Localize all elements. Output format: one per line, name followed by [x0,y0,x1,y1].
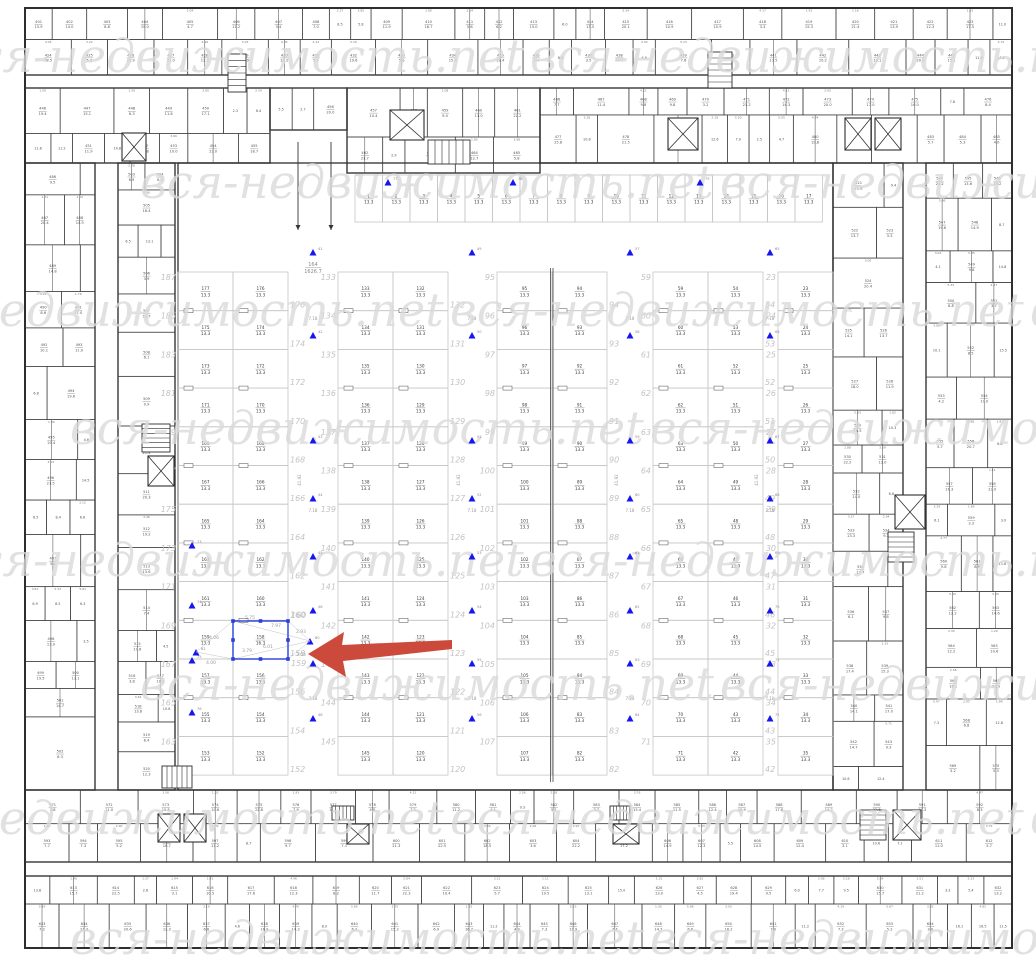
stall-area: 13.3 [256,525,266,530]
room-number: 415 [622,20,629,24]
stall-index-label: 32 [766,621,776,630]
dimension-tick: 5.18 [843,876,850,880]
door-tick [558,618,567,622]
dimension-label: 2.93 [296,629,306,635]
aisle-length-label: 41.92 [614,474,619,486]
stall-number: 123 [417,634,425,639]
stall-area: 13.3 [676,718,686,723]
room-number: 633 [39,922,46,926]
stall-index-label: 83 [609,726,619,735]
parking-stall[interactable] [178,466,233,505]
stall-index-label: 100 [480,467,495,476]
selection-handle[interactable] [231,619,235,623]
floor-plan-page: 40115.940214.04036.840419.04054.72.04406… [0,0,1036,960]
watermark-text: вся-недвижимость.net [450,283,1024,337]
stall-area: 13.3 [676,486,686,491]
dimension-tick: 2.33 [968,876,975,880]
stall-index-label: 160 [291,611,306,620]
room-area: 8.2 [333,891,339,895]
door-tick [784,386,793,390]
parking-stall[interactable] [497,582,552,621]
room-number: 542 [850,740,857,744]
room-number: 562 [949,606,956,610]
stall-area: 13.3 [520,486,530,491]
dimension-tick: 3.05 [725,904,732,908]
room-number: 402 [66,20,73,24]
stall-area: 13.3 [416,525,426,530]
room-number: 520 [143,767,151,771]
parking-stall[interactable] [497,736,552,775]
room-number: 553 [938,394,945,398]
room-area: 3.2 [703,103,709,107]
room-area: 19.4 [39,112,48,116]
room-number: 417 [714,20,721,24]
room-area: 14.8 [49,270,58,274]
room [948,504,995,536]
aisle-width-label: 7.18 [468,508,477,513]
parking-stall[interactable] [778,620,833,659]
room-area: 13.8 [34,889,42,893]
room-number: 619 [333,886,341,890]
room-area: 13.1 [584,891,592,895]
room-number: 499 [37,671,45,675]
room-number: 523 [886,229,893,233]
dimension-tick: 4.70 [292,904,299,908]
room-area: 5.7 [494,891,500,895]
room-area: 15.0 [618,889,626,893]
parking-stall[interactable] [708,736,763,775]
parking-stall[interactable] [653,582,708,621]
room-area: 14.3 [782,103,790,107]
parking-stall[interactable] [338,349,393,388]
selection-handle[interactable] [259,657,263,661]
room-area: 5.3 [993,769,999,773]
stall-number: 70 [678,712,684,717]
room [574,88,629,115]
room [926,746,980,790]
room-area: 9.8 [883,615,889,619]
selection-handle[interactable] [286,638,290,642]
room-number: 568 [963,718,971,722]
parking-stall[interactable] [338,736,393,775]
room-area: 3.3 [968,521,974,525]
room-area: 5.5 [887,234,893,238]
room-area: 19.6 [938,226,947,230]
room-area: 5.4 [968,889,973,893]
room-number: 502 [57,749,64,753]
stall-index-label: 159 [291,659,306,668]
room-area: 16.4 [142,209,151,213]
parking-stall[interactable] [233,349,288,388]
room [161,225,175,257]
stall-number: 32 [803,634,809,639]
room-area: 11.9 [84,150,93,154]
dimension-tick: 3.12 [79,500,86,504]
parking-stall[interactable] [338,582,393,621]
stall-number: 124 [417,596,425,601]
room-area: 10.8 [583,137,591,141]
unit-marker-icon: 46 [310,605,324,614]
watermark-layer: вся-недвижимость.netвся-недвижимость.net… [0,29,1036,960]
aisle-width-label: 7.18 [766,508,775,513]
stall-number: 49 [733,480,739,485]
dimension-tick: 4.19 [837,904,844,908]
stall-number: 92 [577,364,583,369]
room-number: 500 [72,671,80,675]
watermark-text: вся-недвижимость.net [650,401,1036,455]
dimension-tick: 2.94 [883,515,890,519]
marker-number: 73 [197,540,202,544]
room-area: 15.7 [70,891,78,895]
selection-handle[interactable] [231,657,235,661]
room-number: 614 [112,886,120,890]
dimension-tick: 3.00 [865,258,872,262]
hall-area: 1626.7 [304,269,322,275]
stall-index-label: 166 [290,494,305,503]
stall-number: 139 [362,518,370,523]
stall-area: 13.3 [801,718,811,723]
stall-index-label: 65 [641,505,651,514]
dimension-tick: 2.34 [255,88,262,92]
dimension-tick: 3.49 [39,904,46,908]
room-area: 7.3 [934,721,939,725]
room [964,88,1012,115]
stall-area: 13.3 [520,718,530,723]
parking-stall[interactable] [708,620,763,659]
room-number: 471 [743,97,750,101]
unit-marker-icon: 54 [469,605,483,614]
dimension-tick: 1.08 [442,88,449,92]
parking-stall[interactable] [393,582,448,621]
stall-index-label: 43 [765,726,775,735]
marker-number: 63 [635,658,640,662]
marker-number: 53 [477,551,482,555]
parking-stall[interactable] [552,466,607,505]
marker-number: 66 [775,330,780,334]
room-area: 13.1 [146,240,154,244]
stall-area: 13.3 [361,757,371,762]
dimension-tick: 2.65 [824,88,831,92]
room-number: 494 [68,389,76,393]
stall-number: 46 [733,596,739,601]
room-area: 13.7 [851,234,859,238]
parking-stall[interactable] [552,736,607,775]
marker-number: 68 [775,493,780,497]
stall-area: 13.3 [520,602,530,607]
room-number: 563 [992,606,999,610]
stall-number: 100 [521,480,529,485]
room-area: 20.0 [824,103,833,107]
stall-number: 64 [678,480,684,485]
parking-stall[interactable] [778,466,833,505]
room-area: 21.5 [622,140,630,144]
room-area: 6.0 [794,889,799,893]
room-area: 7.9 [736,137,741,141]
room-area: 3.2 [950,769,956,773]
door-tick [239,386,248,390]
parking-stall[interactable] [653,736,708,775]
room-number: 624 [542,886,550,890]
room-number: 615 [171,886,178,890]
parking-stall[interactable] [233,736,288,775]
elevator-shaft-icon [845,118,871,150]
parking-stall[interactable] [497,349,552,388]
room-number: 530 [844,455,852,459]
door-tick [399,618,408,622]
stall-number: 160 [257,596,265,601]
stall-index-label: 90 [609,456,619,465]
stall-number: 145 [362,751,370,756]
room-area: 6.3 [57,755,63,759]
dimension-tick: 4.11 [783,88,790,92]
selection-handle[interactable] [231,638,235,642]
room [80,163,95,195]
room-number: 531 [879,455,886,459]
door-tick [558,464,567,468]
stall-area: 13.3 [575,641,585,646]
stall-index-label: 95 [485,273,495,282]
dimension-label: 5.75 [245,615,255,621]
parking-stall[interactable] [393,349,448,388]
stall-number: 89 [577,480,583,485]
stall-number: 83 [577,712,583,717]
room-number: 498 [48,637,56,641]
room-area: 14.6 [992,611,1001,615]
marker-number: 76 [197,707,202,711]
room-number: 419 [806,20,814,24]
parking-stall[interactable] [653,620,708,659]
room-number: 461 [514,109,521,113]
room-area: 6.8 [33,391,38,395]
dimension-tick: 2.82 [697,876,704,880]
room-area: 3.0 [1001,518,1006,522]
hall-number: 164 [308,262,318,268]
room-number: 570 [992,764,1000,768]
stall-number: 35 [803,751,809,756]
selection-handle[interactable] [259,619,263,623]
stall-number: 67 [678,596,684,601]
marker-number: 74 [197,600,202,604]
room-area: 13.2 [994,891,1002,895]
unit-marker-icon: 60 [627,493,641,502]
room-number: 565 [991,644,998,648]
selection-handle[interactable] [286,619,290,623]
parking-stall[interactable] [393,736,448,775]
dimension-tick: 1.51 [916,876,923,880]
room-area: 19.8 [811,140,820,144]
room-number: 631 [916,886,923,890]
room-number: 506 [143,272,151,276]
door-tick [344,618,353,622]
dimension-tick: 3.04 [935,251,942,255]
room-area: 9.5 [50,180,56,184]
dimension-tick: 1.30 [655,904,662,908]
stall-area: 13.3 [416,718,426,723]
room-area: 6.0 [562,22,567,26]
room-number: 411 [466,20,473,24]
stall-area: 13.3 [575,757,585,762]
stall-number: 43 [733,712,739,717]
room-area: 19.5 [37,676,45,680]
room-area: 13.0 [878,460,887,464]
unit-marker-icon: 80 [307,636,321,645]
room-area: 23.0 [209,150,218,154]
unit-marker-icon: 52 [469,493,482,502]
parking-stall[interactable] [233,582,288,621]
room-number: 630 [877,886,885,890]
room-number: 416 [666,20,674,24]
room-number: 492 [41,343,48,347]
parking-stall[interactable] [778,582,833,621]
room-area: 17.0 [867,103,876,107]
room-number: 559 [968,516,976,520]
stall-number: 71 [678,751,684,756]
stall-number: 130 [417,364,425,369]
dimension-tick: 3.32 [927,904,934,908]
marker-number: 70 [775,605,780,609]
stall-index-label: 139 [321,505,336,514]
room-area: 12.2 [947,649,955,653]
door-tick [503,618,512,622]
stall-number: 144 [362,712,370,717]
room [687,88,724,115]
watermark-text: вся-недвижимость.net [70,401,644,455]
room-area: 6.9 [32,602,37,606]
room-area: 8.5 [968,352,974,356]
door-tick [659,464,668,468]
room-area: 8.4 [55,516,60,520]
room-number: 454 [210,144,218,148]
room-number: 412 [496,20,503,24]
room-number: 457 [370,109,377,113]
parking-stall[interactable] [653,349,708,388]
room-area: 17.6 [133,647,142,651]
parking-stall[interactable] [393,466,448,505]
room-number: 406 [233,20,241,24]
room-area: 15.8 [554,140,563,144]
parking-stall[interactable] [497,620,552,659]
room-area: 4.0 [994,140,1000,144]
marker-number: 77 [393,177,398,181]
parking-stall[interactable] [653,466,708,505]
marker-number: 50 [477,330,482,334]
parking-stall[interactable] [178,620,233,659]
room-area: 14.7 [850,745,858,749]
parking-stall[interactable] [552,620,607,659]
parking-stall[interactable] [778,736,833,775]
room-area: 11.6 [165,112,174,116]
room-number: 616 [207,886,215,890]
room-area: 10.4 [443,891,452,895]
stall-number: 127 [417,480,425,485]
stall-area: 13.3 [801,757,811,762]
dimension-tick: 2.75 [391,904,398,908]
room-number: 537 [882,610,889,614]
stall-index-label: 107 [480,737,496,746]
room-number: 564 [948,644,956,648]
room-area: 6.1 [144,356,150,360]
watermark-text: вся-недвижимость.net [450,791,1024,845]
dimension-tick: 1.40 [70,876,77,880]
room-number: 532 [853,490,860,494]
room-number: 622 [443,886,450,890]
stall-area: 13.3 [416,602,426,607]
stall-area: 13.3 [361,525,371,530]
parking-stall[interactable] [708,349,763,388]
room-area: 7.8 [950,100,955,104]
room-number: 512 [143,527,150,531]
room-area: 6.4 [256,109,261,113]
parking-stall[interactable] [178,582,233,621]
room-area: 8.7 [999,223,1004,227]
dimension-tick: 2.78 [128,163,135,167]
parking-stall[interactable] [552,349,607,388]
stall-area: 13.3 [520,757,530,762]
room-area: 14.8 [113,147,121,151]
aisle-length-label: 41.92 [754,474,759,486]
stall-index-label: 26 [766,389,776,398]
parking-stall[interactable] [708,582,763,621]
stall-index-label: 23 [766,273,776,282]
stall-area: 13.3 [256,370,266,375]
marker-number: 45 [318,551,323,555]
room-area: 11.0 [999,22,1007,26]
room [314,88,347,130]
selection-handle[interactable] [286,657,290,661]
stall-index-label: 121 [450,726,465,735]
room-number: 485 [993,135,1000,139]
stall-index-label: 131 [450,339,465,348]
stall-number: 97 [522,364,528,369]
parking-stall[interactable] [178,349,233,388]
stall-number: 165 [202,518,210,523]
dimension-tick: 1.51 [41,195,48,199]
room-area: 19.6 [67,394,76,398]
unit-marker-icon: 57 [627,247,640,256]
room-number: 468 [640,97,648,101]
room-number: 620 [372,886,380,890]
room-area: 14.8 [999,265,1007,269]
door-tick [184,464,193,468]
parking-stall[interactable] [233,466,288,505]
dimension-label: 7.97 [271,623,281,629]
door-tick [784,464,793,468]
dimension-tick: 5.81 [79,587,86,591]
parking-stall[interactable] [338,466,393,505]
stall-number: 141 [362,596,370,601]
stall-area: 13.3 [201,641,211,646]
dimension-tick: 1.11 [989,468,996,472]
stall-index-label: 181 [161,389,176,398]
stall-area: 13.3 [676,602,686,607]
stall-index-label: 89 [609,494,619,503]
stall-area: 13.3 [201,370,211,375]
parking-stall[interactable] [778,349,833,388]
room-number: 460 [475,109,483,113]
marker-number: 46 [318,605,323,609]
room-area: 14.7 [56,704,64,708]
room-area: 11.0 [475,114,484,118]
parking-stall[interactable] [497,466,552,505]
room-number: 405 [187,20,194,24]
dimension-tick: 5.98 [687,904,694,908]
dimension-tick: 3.61 [32,587,39,591]
room-area: 18.7 [250,150,258,154]
room-number: 413 [530,20,537,24]
room-number: 516 [129,674,137,678]
room-area: 9.5 [766,891,772,895]
parking-stall[interactable] [552,582,607,621]
